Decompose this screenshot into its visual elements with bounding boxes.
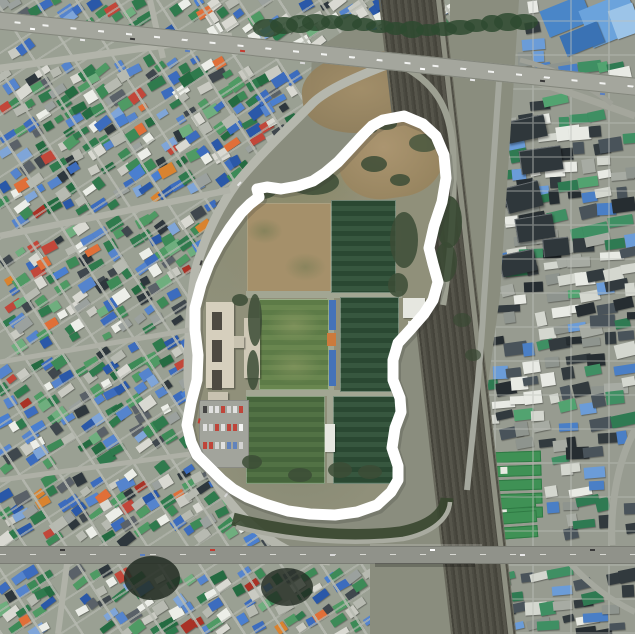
annotation-overlay xyxy=(0,0,635,634)
satellite-map xyxy=(0,0,635,634)
complex-outline xyxy=(187,116,446,515)
